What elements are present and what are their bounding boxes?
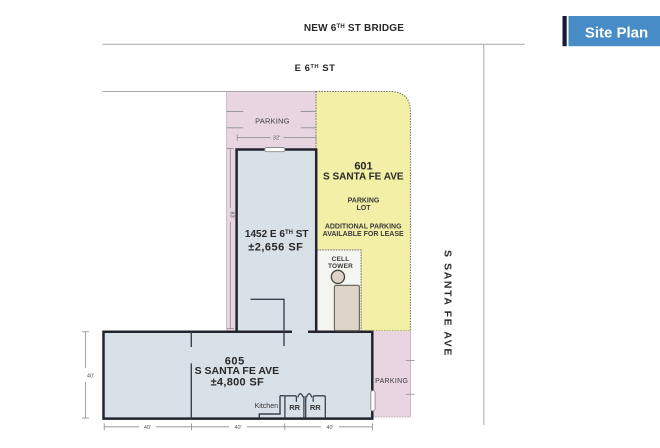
svg-text:CELL: CELL — [332, 256, 350, 263]
svg-text:LOT: LOT — [357, 205, 372, 212]
svg-text:40': 40' — [87, 374, 94, 380]
svg-text:ADDITIONAL PARKING: ADDITIONAL PARKING — [325, 224, 402, 231]
svg-text:RR: RR — [289, 403, 300, 412]
svg-text:S SANTA FE AVE: S SANTA FE AVE — [442, 250, 454, 357]
svg-text:PARKING: PARKING — [255, 117, 290, 126]
svg-text:TOWER: TOWER — [328, 263, 353, 270]
svg-text:83': 83' — [228, 211, 234, 218]
svg-text:40': 40' — [326, 425, 333, 431]
svg-text:PARKING: PARKING — [375, 378, 408, 385]
svg-text:1452 E 6TH ST: 1452 E 6TH ST — [245, 229, 309, 240]
svg-text:Site Plan: Site Plan — [585, 25, 648, 42]
svg-text:S SANTA FE AVE: S SANTA FE AVE — [323, 172, 404, 183]
svg-text:PARKING: PARKING — [348, 198, 380, 205]
svg-text:40': 40' — [234, 425, 241, 431]
svg-text:NEW 6TH ST BRIDGE: NEW 6TH ST BRIDGE — [304, 23, 404, 34]
svg-text:S SANTA FE AVE: S SANTA FE AVE — [195, 365, 280, 377]
svg-text:32': 32' — [273, 136, 280, 142]
svg-text:40': 40' — [144, 425, 151, 431]
svg-text:RR: RR — [310, 403, 321, 412]
svg-text:AVAILABLE FOR LEASE: AVAILABLE FOR LEASE — [323, 231, 404, 238]
svg-text:±4,800 SF: ±4,800 SF — [211, 376, 264, 388]
svg-text:±2,656 SF: ±2,656 SF — [248, 242, 303, 254]
svg-text:Kitchen: Kitchen — [255, 403, 278, 410]
